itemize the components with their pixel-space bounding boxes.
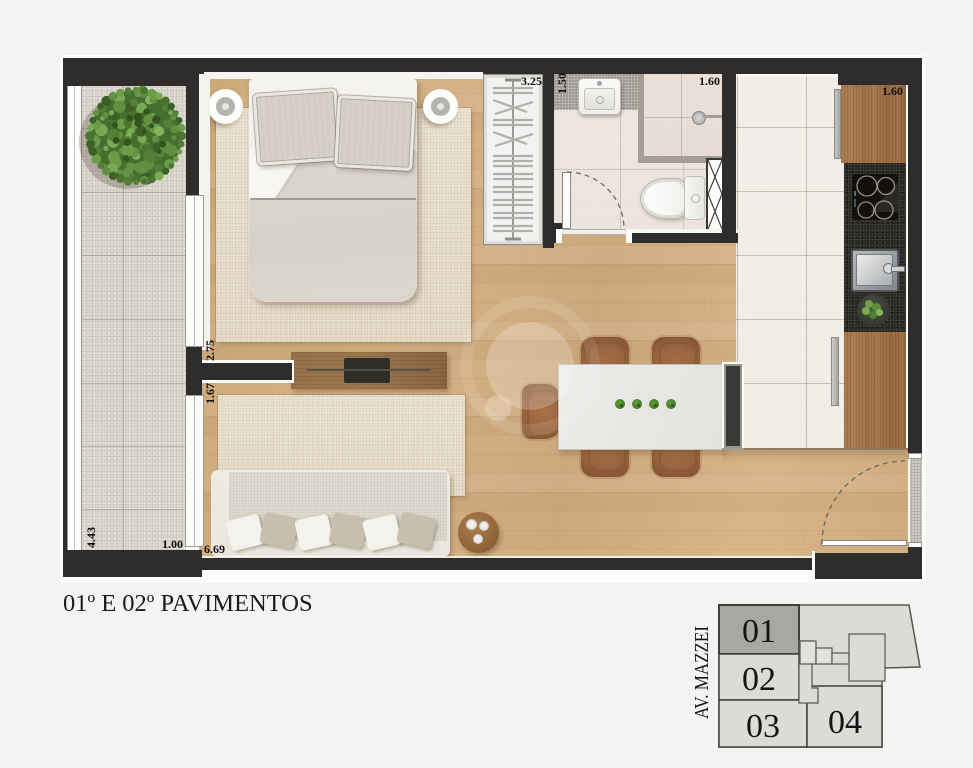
svg-text:01: 01 xyxy=(742,613,776,650)
svg-text:04: 04 xyxy=(828,704,862,741)
svg-text:02: 02 xyxy=(742,661,776,698)
svg-text:AV. MAZZEI: AV. MAZZEI xyxy=(691,626,713,719)
svg-text:03: 03 xyxy=(746,708,780,745)
